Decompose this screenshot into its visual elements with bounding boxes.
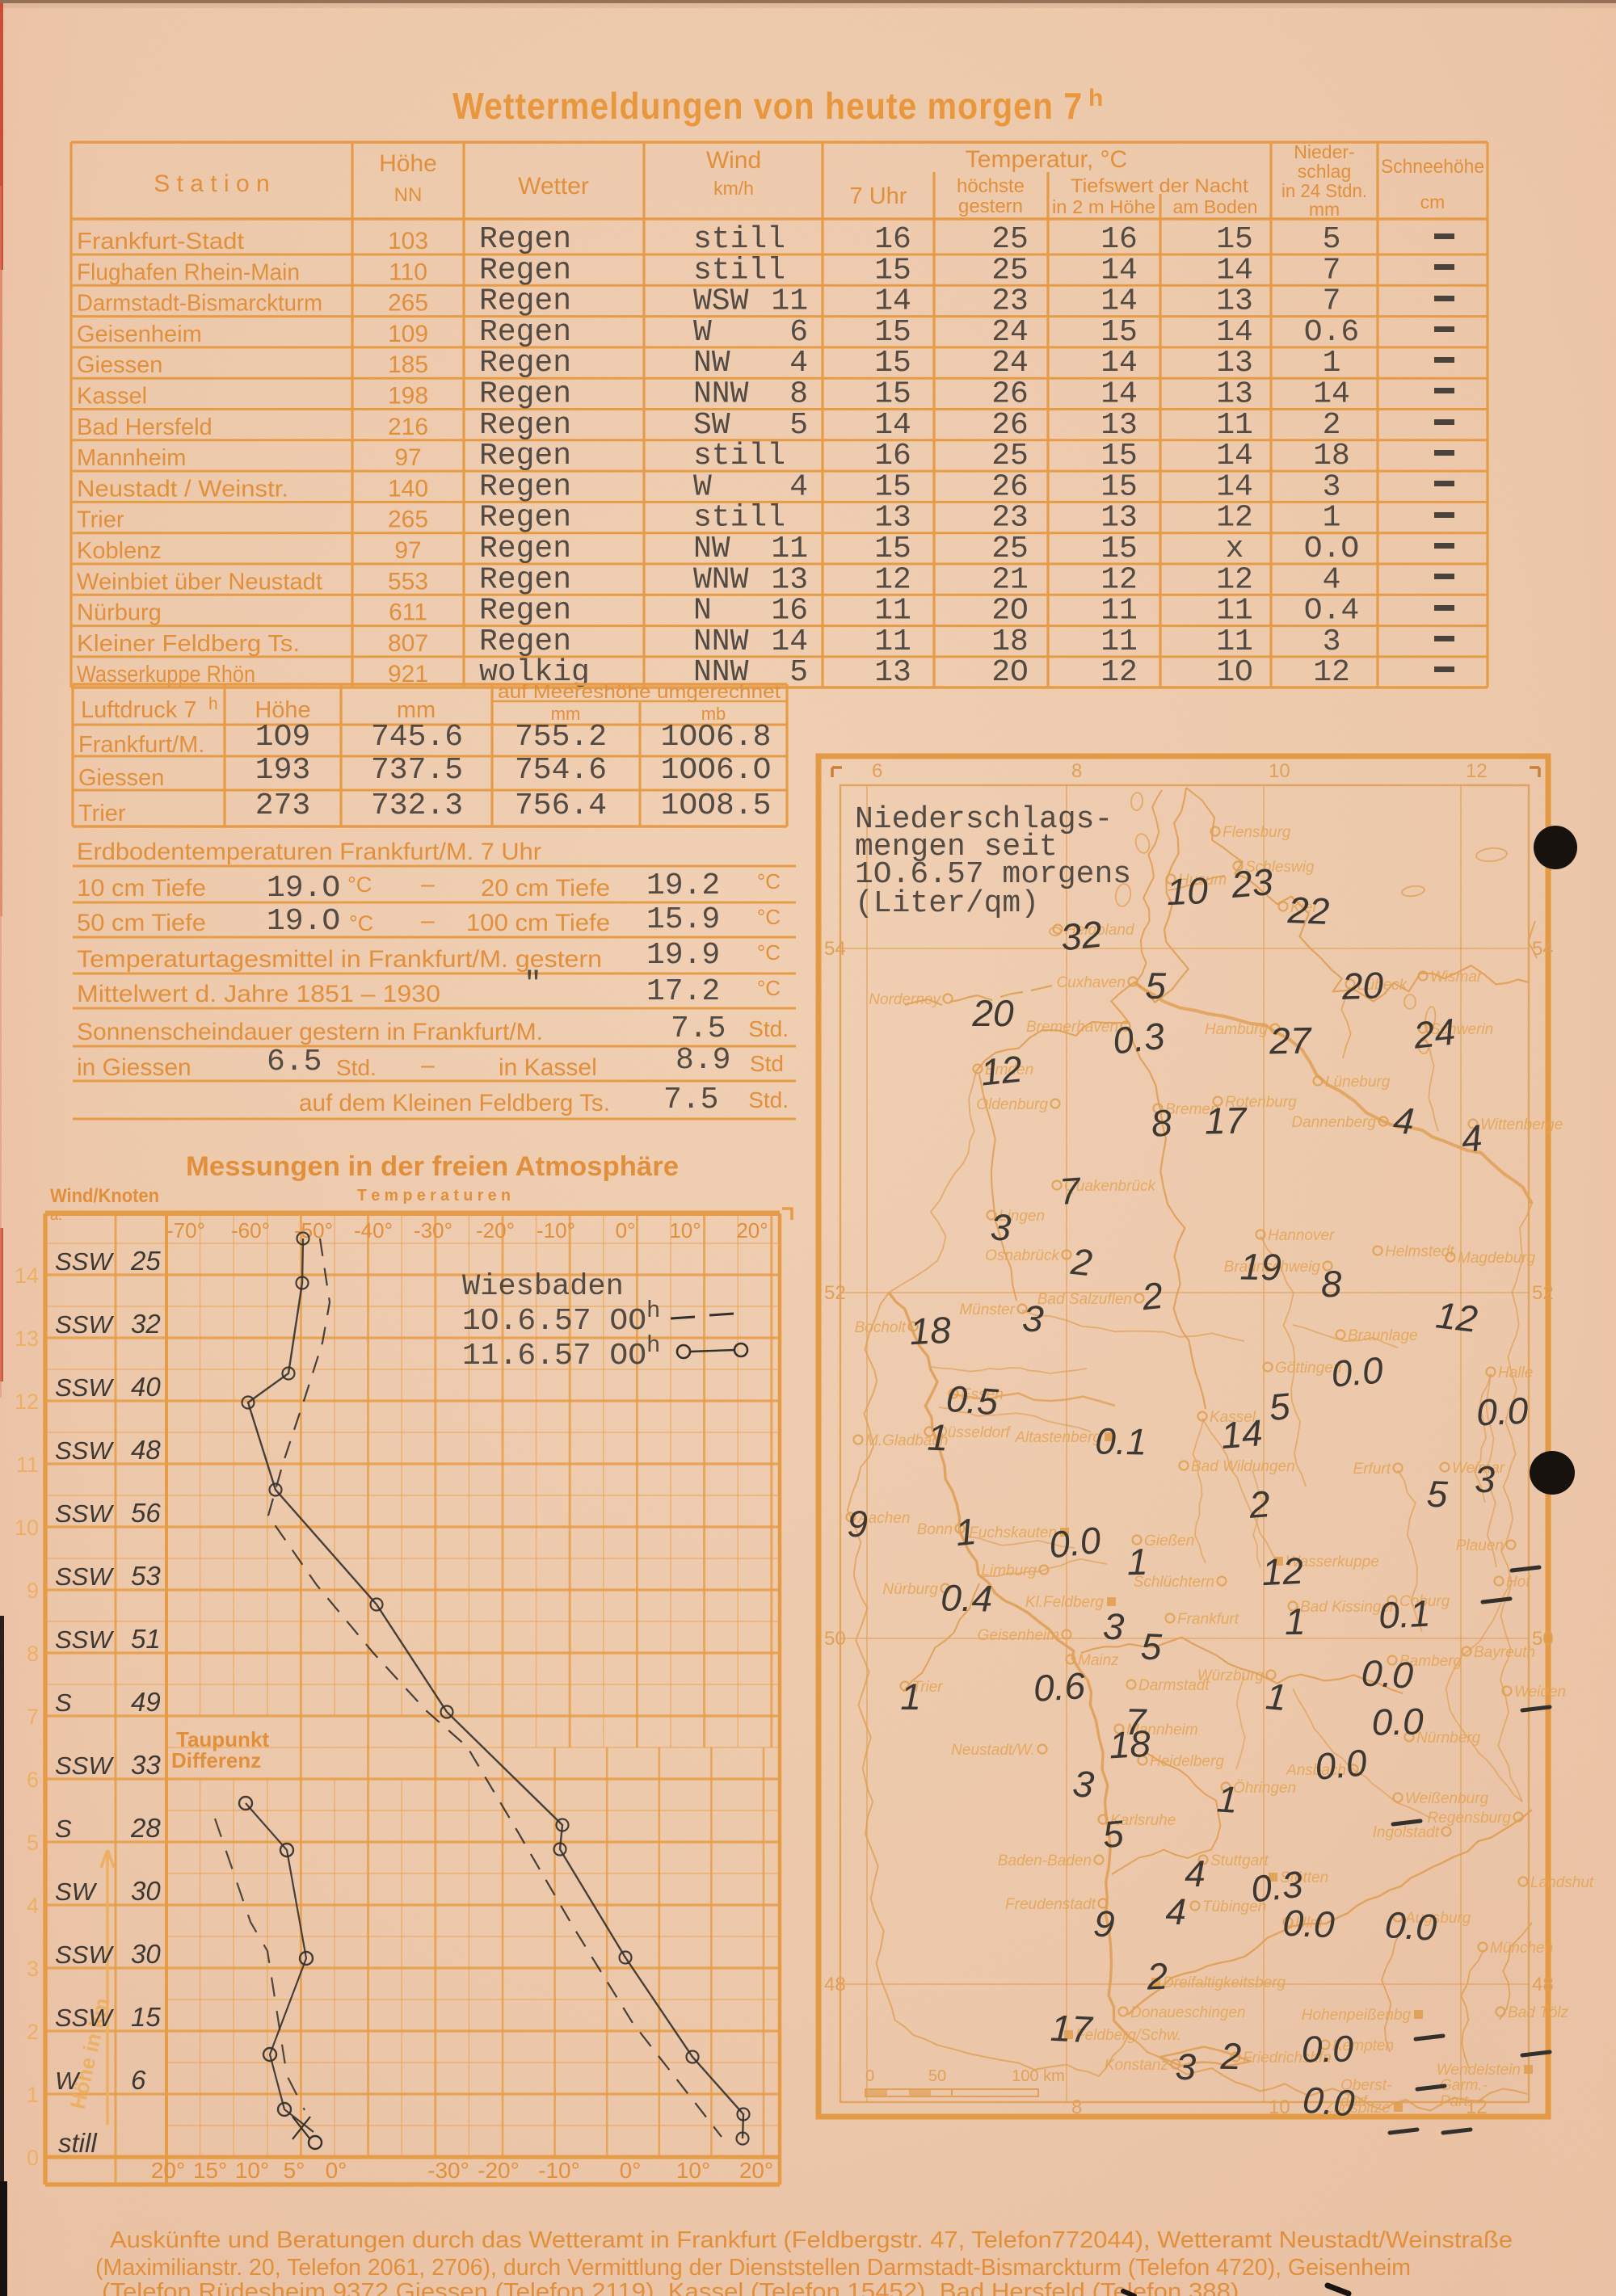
svg-text:Neustadt/W.: Neustadt/W. xyxy=(951,1742,1035,1759)
svg-text:2: 2 xyxy=(1247,1482,1271,1526)
svg-text:6.5: 6.5 xyxy=(267,1045,322,1079)
svg-text:12: 12 xyxy=(15,1390,39,1414)
svg-text:auf dem Kleinen Feldberg Ts.: auf dem Kleinen Feldberg Ts. xyxy=(299,1090,610,1116)
svg-text:Hof: Hof xyxy=(1506,1574,1531,1591)
svg-text:NN: NN xyxy=(394,184,423,206)
svg-text:Regen: Regen xyxy=(479,408,571,443)
svg-text:Lüneburg: Lüneburg xyxy=(1325,1074,1391,1091)
svg-text:12: 12 xyxy=(1466,760,1488,782)
svg-text:0.5: 0.5 xyxy=(945,1377,999,1423)
svg-text:°C: °C xyxy=(349,911,373,936)
svg-text:0.0: 0.0 xyxy=(1301,2078,1356,2124)
svg-text:7: 7 xyxy=(1323,253,1341,288)
svg-text:NNW: NNW xyxy=(693,377,749,412)
svg-text:Weinbiet über Neustadt: Weinbiet über Neustadt xyxy=(77,569,322,595)
svg-text:14: 14 xyxy=(1216,253,1253,288)
svg-text:Ingolstadt: Ingolstadt xyxy=(1373,1824,1440,1841)
svg-text:2O: 2O xyxy=(991,655,1029,690)
svg-text:24: 24 xyxy=(991,346,1029,381)
svg-text:13: 13 xyxy=(874,501,911,536)
svg-text:Hannover: Hannover xyxy=(1268,1227,1335,1244)
svg-text:19.9: 19.9 xyxy=(646,938,720,973)
svg-text:Mittelwert d. Jahre 1851 – 193: Mittelwert d. Jahre 1851 – 1930 xyxy=(77,981,440,1007)
svg-text:11: 11 xyxy=(1216,594,1253,629)
svg-text:Std.: Std. xyxy=(336,1055,377,1080)
svg-text:Differenz: Differenz xyxy=(171,1748,261,1772)
svg-text:höchste: höchste xyxy=(957,175,1025,197)
svg-text:Bocholt: Bocholt xyxy=(855,1319,907,1336)
svg-text:3: 3 xyxy=(1102,1604,1126,1648)
svg-text:18: 18 xyxy=(908,1309,952,1353)
svg-text:265: 265 xyxy=(388,290,428,317)
svg-text:4: 4 xyxy=(27,1894,39,1918)
svg-text:193: 193 xyxy=(255,753,310,788)
svg-text:0.0: 0.0 xyxy=(1361,1651,1415,1697)
svg-text:23: 23 xyxy=(1229,860,1275,906)
svg-text:Neustadt / Weinstr.: Neustadt / Weinstr. xyxy=(77,476,288,502)
svg-text:-40°: -40° xyxy=(354,1218,393,1243)
svg-text:Helmstedt: Helmstedt xyxy=(1385,1243,1454,1260)
svg-text:14: 14 xyxy=(771,624,808,659)
svg-text:5: 5 xyxy=(789,655,808,690)
svg-text:15: 15 xyxy=(131,2002,161,2032)
svg-text:8: 8 xyxy=(1071,2096,1082,2118)
svg-text:W: W xyxy=(693,469,712,504)
svg-text:Braunlage: Braunlage xyxy=(1348,1327,1418,1344)
svg-text:50 cm Tiefe: 50 cm Tiefe xyxy=(77,910,206,936)
svg-text:1: 1 xyxy=(1216,1777,1239,1821)
svg-text:2: 2 xyxy=(1145,1954,1168,1997)
svg-text:0.0: 0.0 xyxy=(1475,1390,1530,1434)
svg-text:Geisenheim: Geisenheim xyxy=(77,322,202,347)
svg-text:-30°: -30° xyxy=(414,1218,452,1243)
svg-text:Wind/Knoten: Wind/Knoten xyxy=(50,1185,159,1207)
svg-text:16: 16 xyxy=(874,439,911,473)
svg-text:in Kassel: in Kassel xyxy=(499,1054,597,1081)
svg-text:4: 4 xyxy=(1323,562,1341,597)
svg-text:19.O: 19.O xyxy=(267,904,340,939)
svg-text:Std: Std xyxy=(750,1051,784,1076)
svg-text:40: 40 xyxy=(131,1372,161,1402)
svg-text:NNW: NNW xyxy=(693,624,749,659)
svg-text:Wendelstein: Wendelstein xyxy=(1437,2062,1521,2079)
svg-text:SSW: SSW xyxy=(55,1373,114,1402)
svg-text:Nürburg: Nürburg xyxy=(882,1581,938,1598)
svg-text:18: 18 xyxy=(1108,1722,1151,1767)
svg-text:2: 2 xyxy=(1139,1274,1165,1318)
svg-text:°C: °C xyxy=(757,905,781,929)
svg-text:9: 9 xyxy=(847,1503,868,1545)
svg-text:Halle: Halle xyxy=(1498,1365,1533,1381)
svg-text:O.4: O.4 xyxy=(1304,594,1359,629)
svg-text:19: 19 xyxy=(1239,1246,1281,1289)
svg-text:1: 1 xyxy=(27,2083,39,2107)
svg-text:-10°: -10° xyxy=(538,2158,580,2183)
svg-text:0.0: 0.0 xyxy=(1383,1903,1438,1949)
svg-text:23: 23 xyxy=(991,501,1029,536)
svg-text:SSW: SSW xyxy=(55,1751,114,1780)
svg-text:Regen: Regen xyxy=(479,253,571,288)
svg-text:27: 27 xyxy=(1269,1020,1312,1062)
svg-text:Nieder-: Nieder- xyxy=(1294,141,1354,162)
svg-text:14: 14 xyxy=(1100,253,1138,288)
svg-text:7: 7 xyxy=(27,1705,39,1729)
svg-text:11: 11 xyxy=(874,594,911,629)
svg-text:1: 1 xyxy=(900,1676,921,1718)
svg-text:Fuchskauten: Fuchskauten xyxy=(969,1524,1057,1541)
svg-text:Giessen: Giessen xyxy=(77,352,162,378)
svg-text:25: 25 xyxy=(991,253,1029,288)
svg-text:15: 15 xyxy=(874,469,911,504)
svg-text:Nürburg: Nürburg xyxy=(77,600,162,626)
svg-text:Sonnenscheindauer gestern in F: Sonnenscheindauer gestern in Frankfurt/M… xyxy=(77,1019,543,1045)
svg-text:5: 5 xyxy=(1101,1812,1126,1856)
svg-text:1: 1 xyxy=(1285,1600,1306,1642)
svg-text:0°: 0° xyxy=(616,1218,636,1243)
svg-text:SSW: SSW xyxy=(55,2004,114,2032)
svg-text:17.2: 17.2 xyxy=(646,974,720,1009)
svg-text:°C: °C xyxy=(757,869,781,894)
svg-text:Oldenburg: Oldenburg xyxy=(976,1096,1048,1113)
svg-text:NW: NW xyxy=(693,346,730,381)
svg-text:(Liter/qm): (Liter/qm) xyxy=(855,886,1039,921)
svg-text:21: 21 xyxy=(991,562,1029,597)
svg-text:Auskünfte und Beratungen durch: Auskünfte und Beratungen durch das Wette… xyxy=(110,2227,1513,2253)
svg-text:12: 12 xyxy=(1100,562,1138,597)
svg-text:15: 15 xyxy=(1100,439,1138,473)
svg-text:0.0: 0.0 xyxy=(1329,1348,1385,1394)
svg-text:SSW: SSW xyxy=(55,1941,114,1969)
svg-text:Frankfurt/M.: Frankfurt/M. xyxy=(78,732,204,758)
svg-text:Erfurt: Erfurt xyxy=(1353,1461,1391,1478)
svg-text:9: 9 xyxy=(27,1579,39,1603)
svg-text:Weißenburg: Weißenburg xyxy=(1405,1790,1489,1807)
svg-text:48: 48 xyxy=(824,1974,846,1995)
svg-text:Bad Hersfeld: Bad Hersfeld xyxy=(77,414,213,440)
svg-text:4: 4 xyxy=(1165,1890,1186,1932)
svg-text:5: 5 xyxy=(27,1831,39,1855)
svg-text:11.6.57 OO: 11.6.57 OO xyxy=(462,1339,646,1373)
svg-text:28: 28 xyxy=(130,1813,161,1843)
svg-text:still: still xyxy=(693,439,785,473)
svg-text:0: 0 xyxy=(27,2146,39,2170)
svg-text:still: still xyxy=(693,222,785,257)
svg-text:56: 56 xyxy=(131,1498,161,1528)
svg-text:auf Meereshöhe umgerechnet: auf Meereshöhe umgerechnet xyxy=(498,681,781,702)
svg-text:25: 25 xyxy=(991,532,1029,566)
svg-text:14: 14 xyxy=(15,1264,39,1288)
svg-text:(Telefon Rüdesheim 9372 Giesse: (Telefon Rüdesheim 9372 Giessen (Telefon… xyxy=(102,2279,1246,2296)
svg-text:Regensburg: Regensburg xyxy=(1427,1810,1511,1827)
svg-text:14: 14 xyxy=(1100,284,1138,319)
svg-text:3: 3 xyxy=(990,1206,1012,1249)
svg-text:737.5: 737.5 xyxy=(371,753,463,788)
svg-text:110: 110 xyxy=(389,259,427,285)
svg-text:16: 16 xyxy=(771,594,808,629)
svg-text:14: 14 xyxy=(1313,377,1350,412)
svg-text:Bonn: Bonn xyxy=(917,1521,953,1538)
svg-text:17: 17 xyxy=(1205,1099,1248,1142)
svg-text:12: 12 xyxy=(1313,655,1350,690)
svg-text:-20°: -20° xyxy=(478,2158,520,2183)
svg-text:h: h xyxy=(646,1297,660,1324)
svg-text:0.0: 0.0 xyxy=(1302,2028,1354,2071)
svg-text:3: 3 xyxy=(1021,1297,1045,1340)
svg-text:7: 7 xyxy=(1058,1169,1082,1213)
svg-text:18: 18 xyxy=(1313,439,1350,473)
svg-text:Std.: Std. xyxy=(748,1016,789,1041)
svg-text:-50°: -50° xyxy=(294,1218,333,1243)
svg-text:140: 140 xyxy=(388,475,428,502)
svg-text:5: 5 xyxy=(1323,222,1341,257)
svg-text:SSW: SSW xyxy=(55,1625,114,1654)
svg-text:14: 14 xyxy=(874,408,911,443)
svg-text:12: 12 xyxy=(1100,655,1138,690)
svg-text:still: still xyxy=(693,253,785,288)
svg-text:13: 13 xyxy=(1216,377,1253,412)
svg-text:Konstanz: Konstanz xyxy=(1105,2057,1169,2074)
svg-text:18: 18 xyxy=(991,624,1029,659)
svg-text:52: 52 xyxy=(1532,1282,1554,1304)
svg-text:3: 3 xyxy=(1323,469,1341,504)
svg-text:Bad Wildungen: Bad Wildungen xyxy=(1191,1458,1295,1475)
svg-text:100 km: 100 km xyxy=(1012,2067,1065,2085)
svg-text:20°: 20° xyxy=(739,2158,773,2183)
svg-text:5: 5 xyxy=(1145,965,1166,1007)
svg-text:0.0: 0.0 xyxy=(1047,1519,1104,1566)
svg-text:S t a t i o n: S t a t i o n xyxy=(154,170,269,197)
svg-text:Bayreuth: Bayreuth xyxy=(1474,1644,1535,1661)
svg-text:756.4: 756.4 xyxy=(515,788,607,823)
svg-text:11: 11 xyxy=(1100,624,1138,659)
svg-text:Trier: Trier xyxy=(78,801,126,826)
svg-text:26: 26 xyxy=(991,408,1029,443)
svg-text:15: 15 xyxy=(874,315,911,350)
svg-text:11: 11 xyxy=(1100,594,1138,629)
svg-text:26: 26 xyxy=(991,377,1029,412)
svg-text:Hohenpeißenbg: Hohenpeißenbg xyxy=(1302,2007,1412,2024)
svg-text:Regen: Regen xyxy=(479,377,571,412)
svg-text:33: 33 xyxy=(131,1750,161,1780)
svg-text:Cuxhaven: Cuxhaven xyxy=(1056,974,1126,991)
svg-text:W: W xyxy=(693,315,712,350)
svg-text:11: 11 xyxy=(771,532,808,566)
svg-text:8: 8 xyxy=(1071,760,1082,782)
svg-text:SSW: SSW xyxy=(55,1247,114,1276)
svg-text:10°: 10° xyxy=(235,2158,269,2183)
svg-text:265: 265 xyxy=(388,507,428,533)
svg-text:4: 4 xyxy=(789,469,808,504)
svg-text:Flensburg: Flensburg xyxy=(1223,824,1291,841)
svg-text:Frankfurt: Frankfurt xyxy=(1177,1611,1239,1628)
svg-text:755.2: 755.2 xyxy=(515,720,607,755)
svg-text:Mannheim: Mannheim xyxy=(77,445,186,471)
svg-text:16: 16 xyxy=(874,222,911,257)
svg-text:Schneehöhe: Schneehöhe xyxy=(1381,156,1484,178)
svg-text:6: 6 xyxy=(131,2065,146,2095)
svg-text:2: 2 xyxy=(1323,408,1341,443)
svg-text:Temperatur, °C: Temperatur, °C xyxy=(966,146,1127,173)
svg-text:11: 11 xyxy=(1216,408,1253,443)
svg-text:11: 11 xyxy=(771,284,808,319)
svg-text:20°: 20° xyxy=(151,2158,185,2183)
svg-text:10: 10 xyxy=(1166,869,1210,913)
svg-text:0°: 0° xyxy=(620,2158,642,2183)
svg-text:Wittenberge: Wittenberge xyxy=(1480,1116,1563,1133)
svg-text:7.5: 7.5 xyxy=(671,1011,726,1046)
svg-text:Kleiner Feldberg Ts.: Kleiner Feldberg Ts. xyxy=(77,631,300,657)
svg-text:11: 11 xyxy=(1216,624,1253,659)
svg-text:48: 48 xyxy=(131,1435,161,1465)
svg-text:0.1: 0.1 xyxy=(1095,1419,1147,1462)
svg-text:1: 1 xyxy=(1126,1541,1147,1583)
svg-text:14: 14 xyxy=(1216,439,1253,473)
svg-text:0.1: 0.1 xyxy=(1378,1592,1431,1636)
svg-text:Erdbodentemperaturen Frankfurt: Erdbodentemperaturen Frankfurt/M. 7 Uhr xyxy=(77,839,541,865)
svg-text:Regen: Regen xyxy=(479,439,571,473)
svg-text:3: 3 xyxy=(1474,1458,1496,1501)
svg-text:15: 15 xyxy=(1100,532,1138,566)
svg-text:20: 20 xyxy=(971,992,1014,1034)
svg-text:52: 52 xyxy=(824,1282,846,1304)
svg-text:Std.: Std. xyxy=(748,1087,789,1112)
svg-text:Bad Salzuflen: Bad Salzuflen xyxy=(1037,1291,1132,1308)
svg-text:13: 13 xyxy=(1100,408,1138,443)
svg-text:48: 48 xyxy=(1532,1974,1554,1995)
svg-text:Magdeburg: Magdeburg xyxy=(1458,1250,1536,1267)
svg-text:10 cm Tiefe: 10 cm Tiefe xyxy=(77,875,206,902)
svg-text:1: 1 xyxy=(1323,346,1341,381)
svg-text:O.6: O.6 xyxy=(1304,315,1359,350)
svg-text:4: 4 xyxy=(1391,1099,1416,1142)
svg-text:5: 5 xyxy=(789,408,808,443)
svg-text:–: – xyxy=(421,1052,435,1079)
svg-text:754.6: 754.6 xyxy=(515,753,607,788)
svg-text:12: 12 xyxy=(978,1048,1024,1094)
svg-text:49: 49 xyxy=(131,1687,161,1717)
svg-text:103: 103 xyxy=(388,228,428,254)
svg-text:15: 15 xyxy=(1100,315,1138,350)
svg-text:12: 12 xyxy=(1261,1550,1304,1593)
svg-text:19.O: 19.O xyxy=(267,871,340,906)
svg-text:19.2: 19.2 xyxy=(646,868,720,903)
svg-text:16: 16 xyxy=(1100,222,1138,257)
svg-text:54: 54 xyxy=(824,938,846,960)
svg-text:12: 12 xyxy=(1433,1293,1479,1340)
svg-text:-20°: -20° xyxy=(476,1218,515,1243)
svg-text:°C: °C xyxy=(347,873,372,897)
svg-text:53: 53 xyxy=(131,1561,161,1591)
svg-text:20: 20 xyxy=(1340,964,1384,1007)
svg-text:Geisenheim: Geisenheim xyxy=(978,1627,1059,1644)
svg-text:7: 7 xyxy=(1323,284,1341,319)
svg-text:20°: 20° xyxy=(736,1218,768,1243)
svg-text:Würzburg: Würzburg xyxy=(1197,1667,1265,1684)
svg-text:Wettermeldungen von heute morg: Wettermeldungen von heute morgen 7 xyxy=(452,85,1083,127)
svg-text:Mainz: Mainz xyxy=(1078,1652,1119,1669)
svg-text:–: – xyxy=(421,907,435,934)
svg-text:Regen: Regen xyxy=(479,501,571,536)
svg-text:W: W xyxy=(55,2067,81,2095)
svg-text:1: 1 xyxy=(927,1416,949,1459)
svg-text:6: 6 xyxy=(789,315,808,350)
svg-text:Wind: Wind xyxy=(706,147,761,174)
svg-text:15: 15 xyxy=(1216,222,1253,257)
svg-text:10: 10 xyxy=(1269,760,1290,782)
svg-text:NW: NW xyxy=(693,532,730,566)
svg-text:Wiesbaden: Wiesbaden xyxy=(462,1270,624,1304)
svg-text:50: 50 xyxy=(928,2067,946,2085)
svg-text:15°: 15° xyxy=(193,2158,227,2183)
svg-text:12: 12 xyxy=(874,562,911,597)
svg-text:Koblenz: Koblenz xyxy=(77,538,162,564)
svg-text:8: 8 xyxy=(1320,1263,1342,1306)
svg-text:185: 185 xyxy=(388,351,428,378)
svg-text:°C: °C xyxy=(757,976,781,1000)
svg-text:SSW: SSW xyxy=(55,1310,114,1339)
svg-text:Wetter: Wetter xyxy=(518,173,589,200)
svg-text:1O9: 1O9 xyxy=(255,720,310,755)
svg-text:216: 216 xyxy=(388,414,428,440)
svg-text:Bad Tölz: Bad Tölz xyxy=(1508,2004,1568,2021)
svg-text:14: 14 xyxy=(1216,469,1253,504)
svg-text:still: still xyxy=(693,501,785,536)
svg-text:Weiden: Weiden xyxy=(1514,1684,1566,1701)
svg-text:Darmstadt-Bismarckturm: Darmstadt-Bismarckturm xyxy=(77,291,322,317)
svg-text:51: 51 xyxy=(131,1624,161,1654)
svg-text:15.9: 15.9 xyxy=(646,902,720,937)
svg-text:1O.6.57 OO: 1O.6.57 OO xyxy=(462,1304,646,1339)
svg-text:611: 611 xyxy=(389,599,427,626)
svg-text:198: 198 xyxy=(388,383,428,410)
svg-text:Regen: Regen xyxy=(479,315,571,350)
svg-text:15: 15 xyxy=(1100,469,1138,504)
svg-text:2: 2 xyxy=(27,2020,39,2044)
svg-text:0.0: 0.0 xyxy=(1313,1741,1369,1788)
svg-text:12: 12 xyxy=(1216,562,1253,597)
svg-text:8: 8 xyxy=(27,1642,39,1666)
svg-text:Regen: Regen xyxy=(479,222,571,257)
svg-text:553: 553 xyxy=(388,568,428,595)
svg-text:109: 109 xyxy=(388,321,428,347)
svg-text:25: 25 xyxy=(991,439,1029,473)
svg-text:5: 5 xyxy=(1267,1385,1292,1428)
svg-text:Freudenstadt: Freudenstadt xyxy=(1005,1896,1096,1913)
svg-text:Höhe: Höhe xyxy=(379,150,437,177)
svg-text:3: 3 xyxy=(27,1957,39,1981)
svg-text:3: 3 xyxy=(1175,2046,1197,2088)
svg-text:N: N xyxy=(693,594,712,629)
svg-text:15: 15 xyxy=(874,346,911,381)
svg-text:1OO6.8: 1OO6.8 xyxy=(661,720,772,755)
svg-text:4: 4 xyxy=(789,346,808,381)
svg-text:Regen: Regen xyxy=(479,284,571,319)
svg-text:Flughafen Rhein-Main: Flughafen Rhein-Main xyxy=(77,259,300,285)
svg-text:1: 1 xyxy=(1323,501,1341,536)
svg-text:745.6: 745.6 xyxy=(371,720,463,755)
svg-text:h: h xyxy=(1088,85,1103,111)
svg-text:732.3: 732.3 xyxy=(371,788,463,823)
svg-text:13: 13 xyxy=(771,562,808,597)
svg-text:807: 807 xyxy=(388,630,428,657)
svg-text:0.3: 0.3 xyxy=(1110,1015,1167,1062)
svg-text:7 Uhr: 7 Uhr xyxy=(850,183,907,209)
svg-text:Münster: Münster xyxy=(959,1301,1015,1318)
svg-text:22: 22 xyxy=(1286,889,1330,932)
svg-text:Trier: Trier xyxy=(77,507,124,533)
svg-text:S: S xyxy=(55,1815,72,1843)
svg-text:30: 30 xyxy=(131,1939,161,1969)
